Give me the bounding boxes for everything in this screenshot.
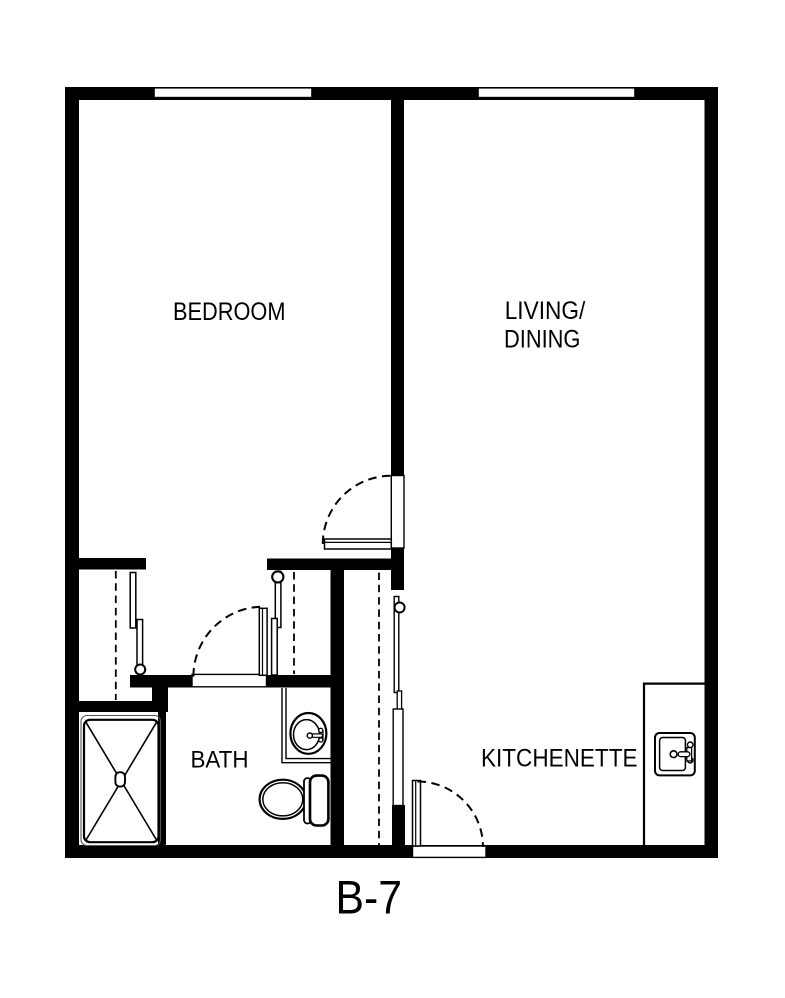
- svg-text:B-7: B-7: [336, 871, 403, 924]
- svg-text:KITCHENETTE: KITCHENETTE: [481, 745, 638, 773]
- svg-text:BEDROOM: BEDROOM: [173, 298, 286, 326]
- svg-text:DINING: DINING: [504, 326, 580, 354]
- svg-text:LIVING/: LIVING/: [505, 297, 586, 325]
- svg-text:BATH: BATH: [191, 747, 249, 774]
